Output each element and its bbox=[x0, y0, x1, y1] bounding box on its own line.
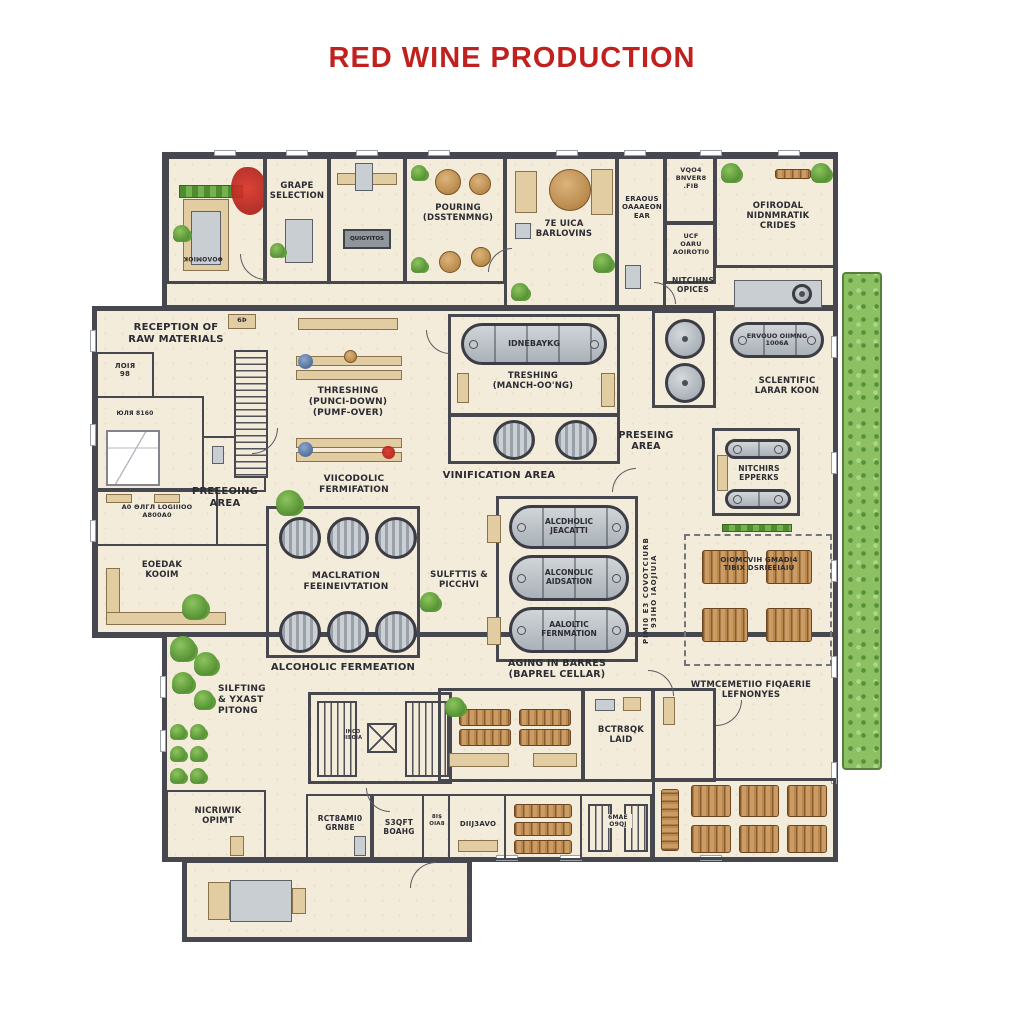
hedge-strip bbox=[722, 524, 792, 532]
plant-icon bbox=[194, 652, 218, 676]
red-stain bbox=[231, 167, 267, 215]
barrels-icon bbox=[702, 608, 748, 642]
room-label-98: ЛOIЯ 98 bbox=[100, 362, 150, 379]
room-label-guard: UCF OARU AOIROTI0 bbox=[670, 233, 712, 256]
tank-milk: ERVOUO OIIMNG 1006A bbox=[730, 322, 824, 358]
stairs-note: 6MAE O9QJ bbox=[604, 814, 632, 828]
fixture bbox=[212, 446, 224, 464]
room-label-offices: OFIRODAL NIDNMRATIK CRIDES bbox=[739, 201, 817, 232]
table bbox=[154, 494, 180, 503]
window bbox=[160, 676, 166, 698]
shelf bbox=[775, 169, 811, 179]
counter bbox=[458, 840, 498, 852]
tank-round bbox=[665, 363, 705, 403]
room-label-maceration: TRESHING (MANCH-OO'NG) bbox=[465, 371, 601, 391]
label-threshing: THRESHING (PUNCI-DOWN) (PUMF-OVER) bbox=[294, 386, 402, 418]
aging-tank: AALOLTIC FERNMATION bbox=[509, 607, 629, 653]
conveyor-row bbox=[296, 370, 402, 380]
plant-icon bbox=[173, 225, 190, 242]
label-sulfiting: SILFTING & YXAST PITONG bbox=[218, 684, 288, 716]
room-bed: ЮЛЯ 8160 bbox=[96, 396, 204, 492]
barrels-icon bbox=[514, 822, 572, 836]
room-aging: ALCDHOLIC JEACATTI ALCONOLIC AIDSATION A… bbox=[496, 496, 638, 662]
tank-label: IDNEBAYKG bbox=[508, 339, 560, 348]
plant-icon bbox=[190, 768, 206, 784]
plant-icon bbox=[190, 724, 206, 740]
counter bbox=[106, 612, 226, 625]
desk bbox=[591, 169, 613, 215]
room-barrel-hall bbox=[652, 778, 836, 860]
grape-cluster bbox=[298, 354, 313, 369]
fermentation-tank bbox=[327, 517, 369, 559]
tank-round bbox=[792, 284, 812, 304]
room-witchers: NITCHIRS EPPERKS bbox=[712, 428, 800, 516]
work-bench bbox=[298, 318, 398, 330]
barrels-icon bbox=[739, 785, 779, 817]
room-label-retaining: RCT8AMI0 GRN8E bbox=[311, 814, 369, 832]
barrels-icon bbox=[459, 709, 511, 726]
barrels-icon bbox=[519, 729, 571, 746]
fermentation-tank bbox=[279, 517, 321, 559]
room-label-bed: ЮЛЯ 8160 bbox=[104, 410, 166, 417]
room-label-network: NICRIWIK OPIMT bbox=[178, 806, 258, 826]
plant-icon bbox=[194, 690, 214, 710]
room-label-tasting: 7E UICA BARLOVINS bbox=[521, 219, 607, 239]
label-kitchens-offices: NITCIHNS OPICES bbox=[666, 276, 720, 294]
plant-icon bbox=[721, 163, 741, 183]
flower-cluster bbox=[382, 446, 395, 459]
barrels-icon bbox=[514, 804, 572, 818]
plant-icon bbox=[811, 163, 831, 183]
corridor-tag: 6Þ bbox=[228, 317, 256, 325]
grape-cluster bbox=[344, 350, 357, 363]
room-label-wood-store: VQO4 BNVER8 .FIB bbox=[670, 167, 712, 190]
label-alc-ferm-top: VIICODOLIC FERMIFATION bbox=[306, 474, 402, 496]
hopper bbox=[355, 163, 373, 191]
connector bbox=[487, 617, 501, 645]
label-vinification: VINIFICATION AREA bbox=[442, 470, 556, 482]
room-control-lab: BCTR8QK LAID bbox=[582, 688, 654, 782]
fixture bbox=[354, 836, 366, 856]
room-stairs-small: 6MAE O9QJ bbox=[580, 794, 652, 860]
barrels-icon bbox=[514, 840, 572, 854]
aging-tank-label: ALCDHOLIC JEACATTI bbox=[545, 518, 593, 535]
grape-cluster bbox=[298, 442, 313, 457]
fermentation-tank bbox=[375, 517, 417, 559]
plant-icon bbox=[170, 636, 196, 662]
barrels-icon bbox=[691, 785, 731, 817]
room-stairwell: INCO IIEOIA bbox=[308, 692, 452, 784]
room-wood-store: VQO4 BNVER8 .FIB bbox=[664, 156, 716, 224]
label-scientific-lab: SCLENTIFIC LARAR KOON bbox=[744, 376, 830, 396]
room-small-tanks bbox=[652, 310, 716, 408]
label-side-note: PIMI0 E3 COVOTCIURB 93IHO IAOJIUIA bbox=[642, 528, 662, 654]
desk bbox=[515, 171, 537, 213]
tank-ribbed bbox=[493, 420, 535, 460]
room-barrel-small bbox=[504, 794, 582, 860]
room-label-grape-selection: GRAPE SELECTION bbox=[268, 181, 326, 201]
room-label-pouring: POURING (DSSTENMNG) bbox=[411, 203, 505, 223]
round-table bbox=[439, 251, 461, 273]
room-label-weighing: ΦOΛOMIOK bbox=[177, 255, 229, 262]
door-piece bbox=[663, 697, 675, 725]
label-aging: AGING IN BARRES (BAPREL CELLAR) bbox=[486, 658, 628, 681]
label-pressing-left: PREEEOING AREA bbox=[186, 486, 264, 510]
elevator-note: INCO IIEOIA bbox=[341, 729, 365, 741]
elevator-icon bbox=[367, 723, 397, 753]
room-barrel-store: OIOMCVIH GMADI4 TIBIX DSRIEEIAIU bbox=[684, 534, 832, 666]
window bbox=[831, 336, 837, 358]
room-label-barrel-store: OIOMCVIH GMADI4 TIBIX DSRIEEIAIU bbox=[692, 556, 826, 573]
lab-desk bbox=[623, 697, 641, 711]
window bbox=[831, 452, 837, 474]
screenshot-root: RED WINE PRODUCTION bbox=[0, 0, 1024, 1024]
room-label-staff-board: S3QFT BOAHG bbox=[377, 818, 421, 836]
room-offices: OFIRODAL NIDNMRATIK CRIDES bbox=[714, 156, 836, 268]
plant-icon bbox=[511, 283, 529, 301]
round-table bbox=[471, 247, 491, 267]
plant-icon bbox=[420, 592, 440, 612]
room-network: NICRIWIK OPIMT bbox=[166, 790, 266, 860]
barrels-icon bbox=[787, 785, 827, 817]
stairs-icon bbox=[234, 350, 268, 478]
room-vinification-tanks bbox=[448, 414, 620, 464]
plant-icon bbox=[172, 672, 194, 694]
counter bbox=[449, 753, 509, 767]
room-label-witchers: NITCHIRS EPPERKS bbox=[719, 464, 799, 482]
tank-round bbox=[665, 319, 705, 359]
plant-icon bbox=[270, 243, 285, 258]
room-maceration: IDNEBAYKG TRESHING (MANCH-OO'NG) bbox=[448, 314, 620, 416]
tank-horizontal: IDNEBAYKG bbox=[461, 323, 607, 365]
tank-label-milk: ERVOUO OIIMNG 1006A bbox=[747, 333, 808, 348]
room-bis: 8I$ OIA8 bbox=[422, 794, 450, 860]
barrels-icon bbox=[739, 825, 779, 853]
plant-icon bbox=[593, 253, 613, 273]
table bbox=[106, 494, 132, 503]
machine-label: QUIGYITOS bbox=[350, 236, 384, 242]
window bbox=[90, 330, 96, 352]
sorting-machine: QUIGYITOS bbox=[343, 229, 391, 249]
sorting-table bbox=[285, 219, 313, 263]
barrels-icon bbox=[459, 729, 511, 746]
lab-desk bbox=[595, 699, 615, 711]
plant-icon bbox=[170, 768, 186, 784]
room-label-bar: ERAOUS OAAAEON EAR bbox=[621, 195, 663, 220]
tank-ribbed bbox=[555, 420, 597, 460]
plant-icon bbox=[276, 490, 302, 516]
room-label-bis: 8I$ OIA8 bbox=[425, 814, 449, 827]
plant-icon bbox=[190, 746, 206, 762]
room-sorting: QUIGYITOS bbox=[328, 156, 406, 284]
side-board bbox=[601, 373, 615, 407]
aging-tank: ALCDHOLIC JEACATTI bbox=[509, 505, 629, 549]
aging-tank-label: AALOLTIC FERNMATION bbox=[541, 621, 597, 638]
plant-icon bbox=[411, 165, 427, 181]
room-divider: DIIJ3AVO bbox=[448, 794, 506, 860]
truck-rear bbox=[208, 882, 230, 920]
plant-icon bbox=[445, 697, 465, 717]
truck-cab bbox=[292, 888, 306, 914]
barrels-icon bbox=[661, 789, 679, 851]
barrels-icon bbox=[787, 825, 827, 853]
barrels-icon bbox=[691, 825, 731, 853]
fermentation-tank bbox=[327, 611, 369, 653]
room-barrel-prep bbox=[438, 688, 584, 782]
cabinet bbox=[625, 265, 641, 289]
room-retaining: RCT8AMI0 GRN8E bbox=[306, 794, 372, 860]
barrels-icon bbox=[766, 608, 812, 642]
label-pressing-right: PRESEING AREA bbox=[614, 430, 678, 453]
bench bbox=[230, 836, 244, 856]
window bbox=[160, 730, 166, 752]
tank-small bbox=[725, 439, 791, 459]
room-cedar: EOEDAK KOOIM bbox=[96, 544, 268, 634]
room-grape-selection: GRAPE SELECTION bbox=[264, 156, 330, 284]
connector bbox=[487, 515, 501, 543]
barrels-icon bbox=[519, 709, 571, 726]
room-tasting: 7E UICA BARLOVINS bbox=[504, 156, 618, 310]
floor-plan: ΦOΛOMIOK GRAPE SELECTION QUIGYITOS POURI… bbox=[0, 0, 1024, 1024]
tank-small bbox=[725, 489, 791, 509]
aging-tank-label: ALCONOLIC AIDSATION bbox=[545, 569, 593, 586]
label-alc-ferm-bottom: ALCOHOLIC FERMEATION bbox=[270, 662, 416, 674]
plant-icon bbox=[170, 746, 186, 762]
plant-icon bbox=[170, 724, 186, 740]
round-table bbox=[469, 173, 491, 195]
plant-icon bbox=[182, 594, 208, 620]
room-side bbox=[652, 688, 716, 782]
room-label-control-lab: BCTR8QK LAID bbox=[593, 725, 649, 745]
side-board bbox=[457, 373, 469, 403]
plant-icon bbox=[411, 257, 427, 273]
fermentation-tank bbox=[375, 611, 417, 653]
room-guard: UCF OARU AOIROTI0 bbox=[664, 222, 716, 284]
garden-hedge bbox=[842, 272, 882, 770]
room-label-divider: DIIJ3AVO bbox=[453, 820, 503, 828]
aging-tank: ALCONOLIC AIDSATION bbox=[509, 555, 629, 601]
room-98: ЛOIЯ 98 bbox=[96, 352, 154, 398]
counter bbox=[533, 753, 577, 767]
fermentation-tank bbox=[279, 611, 321, 653]
room-fermentation: MACLRATION FEEINEIVTATION bbox=[266, 506, 420, 658]
big-round-table bbox=[549, 169, 591, 211]
round-table bbox=[435, 169, 461, 195]
room-label-maceration-ferm: MACLRATION FEEINEIVTATION bbox=[283, 571, 409, 593]
room-label-cedar: EOEDAK KOOIM bbox=[122, 560, 202, 580]
label-sulfites: SULFTTIS & PICCHVI bbox=[426, 570, 492, 590]
bed bbox=[106, 430, 160, 486]
truck-body bbox=[230, 880, 292, 922]
